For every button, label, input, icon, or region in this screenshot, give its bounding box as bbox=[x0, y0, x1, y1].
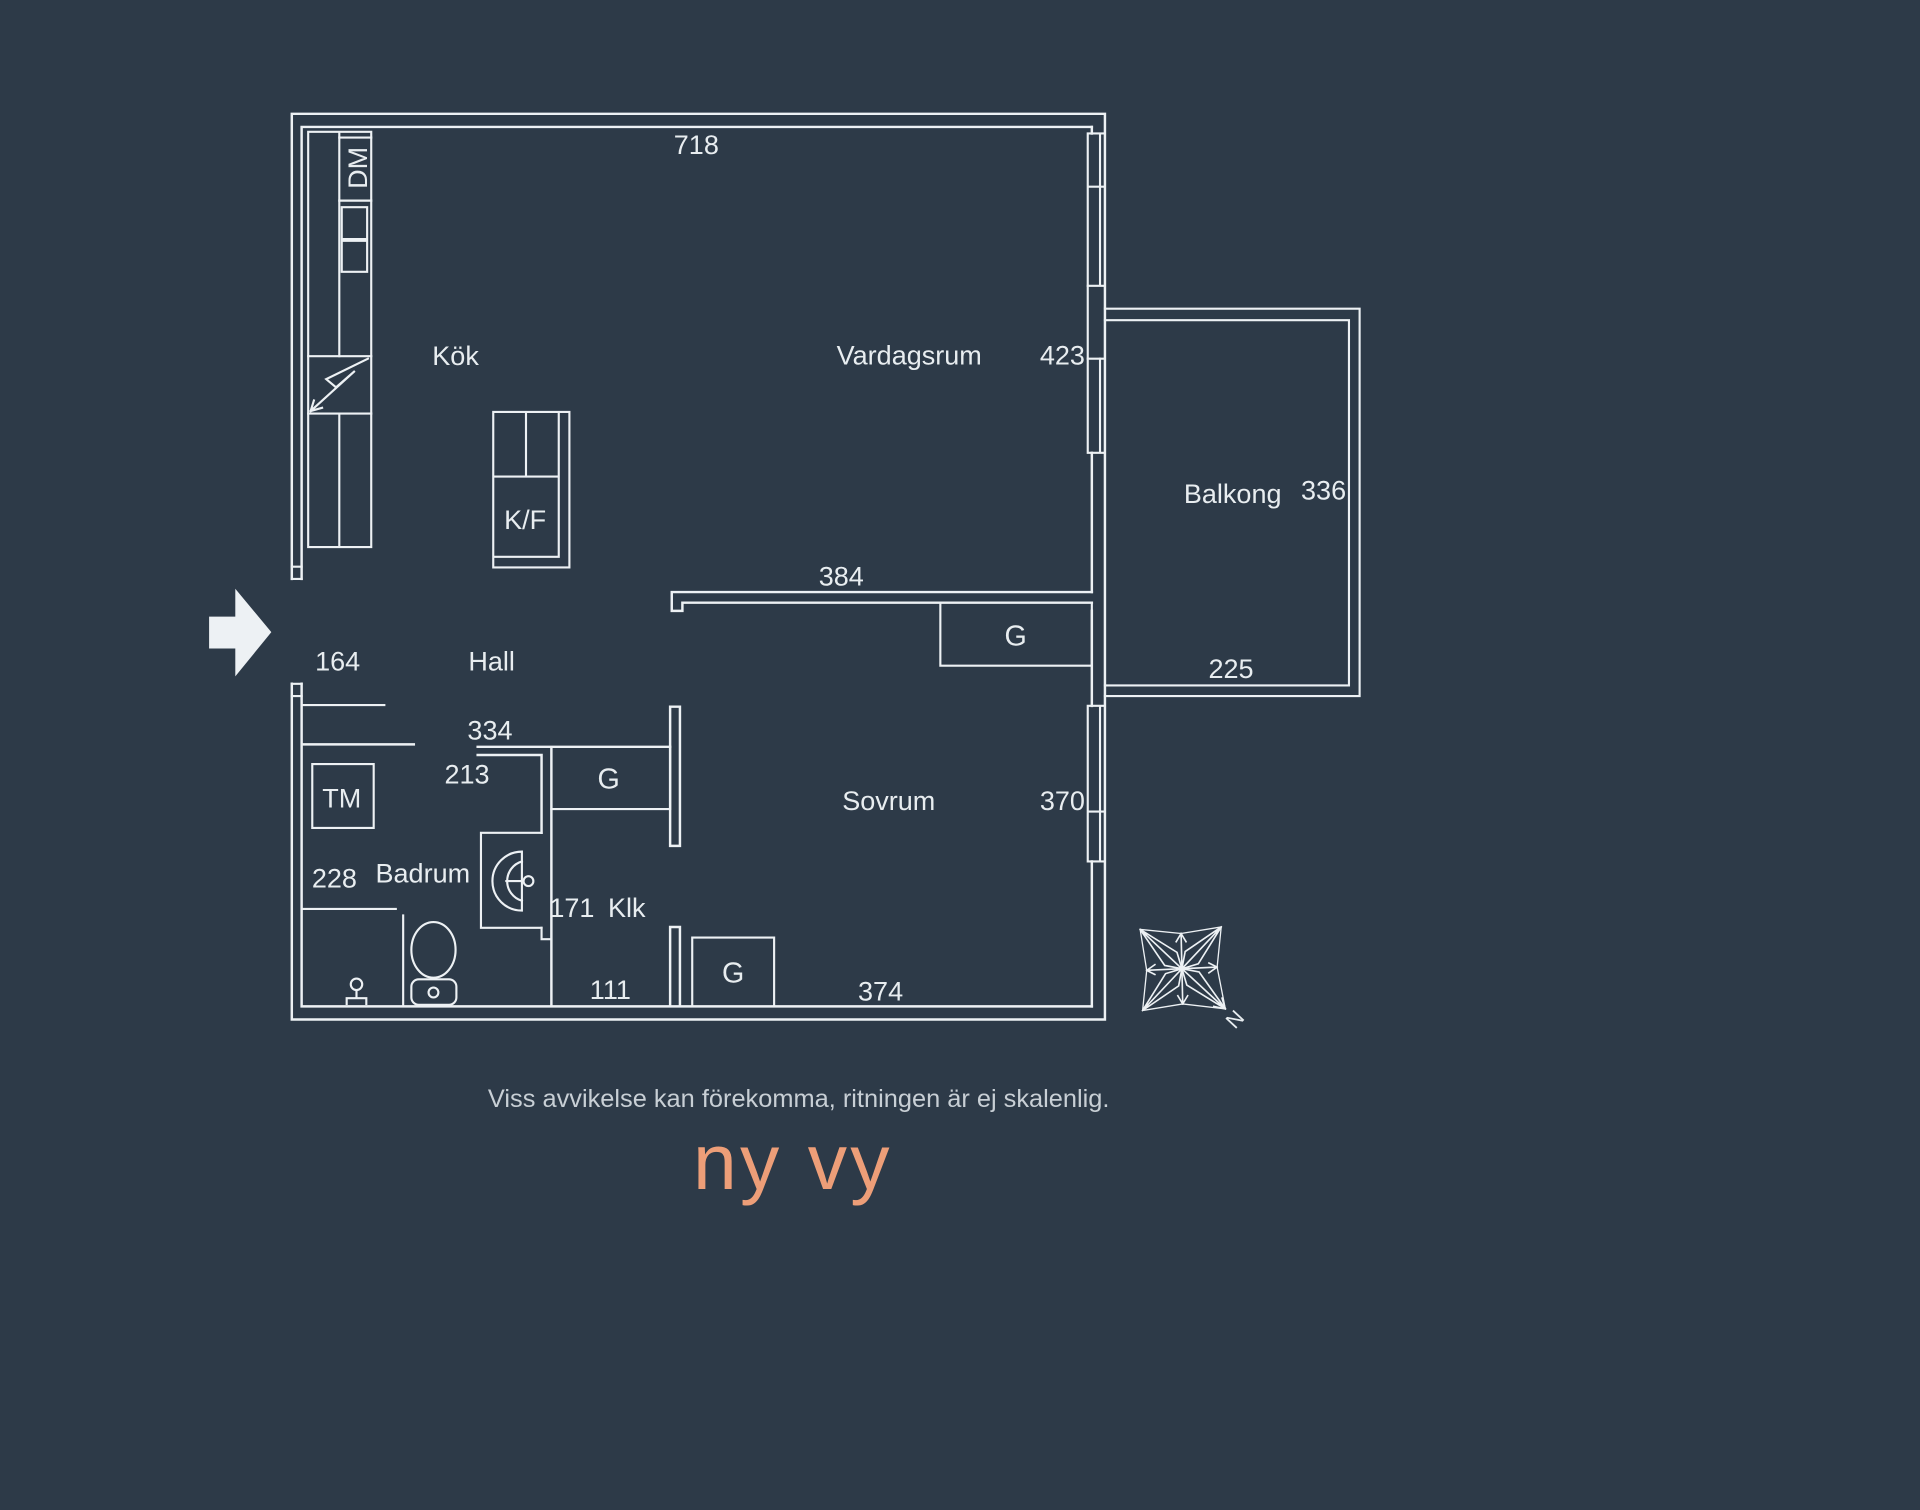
room-label-hall: Hall bbox=[468, 647, 515, 677]
floor-plan: N Kök Vardagsrum Hall Badrum Sovrum Klk … bbox=[0, 0, 1920, 1510]
floor-plan-svg: N Kök Vardagsrum Hall Badrum Sovrum Klk … bbox=[0, 0, 1920, 1510]
room-label-living: Vardagsrum bbox=[837, 340, 982, 370]
dim-bedroom-right: 370 bbox=[1040, 786, 1085, 816]
dim-closet-width: 111 bbox=[590, 975, 631, 1005]
partition-walls bbox=[303, 592, 1092, 1006]
room-label-closet: Klk bbox=[608, 893, 646, 923]
label-washing-machine: TM bbox=[322, 783, 361, 813]
dim-living-right: 423 bbox=[1040, 340, 1085, 370]
dim-balcony-width: 225 bbox=[1209, 654, 1254, 684]
windows-right-wall bbox=[1088, 133, 1105, 861]
disclaimer-text: Viss avvikelse kan förekomma, ritningen … bbox=[488, 1085, 1110, 1113]
toilet-icon bbox=[411, 922, 456, 1005]
compass-rose-icon: N bbox=[1140, 927, 1249, 1033]
dim-balcony-side: 336 bbox=[1301, 476, 1346, 506]
fridge-freezer-unit bbox=[493, 412, 569, 568]
label-dishwasher: DM bbox=[343, 147, 373, 189]
kitchen-counter bbox=[308, 132, 371, 547]
dim-bathroom-width: 213 bbox=[444, 760, 489, 790]
room-label-bedroom: Sovrum bbox=[842, 786, 935, 816]
room-label-balcony: Balkong bbox=[1184, 479, 1282, 509]
label-wardrobe-bedroom: G bbox=[722, 958, 744, 990]
floor-drain-icon bbox=[347, 979, 367, 1004]
label-wardrobe-hall: G bbox=[598, 764, 620, 796]
label-wardrobe-wall: G bbox=[1005, 620, 1027, 652]
room-label-bathroom: Badrum bbox=[376, 859, 471, 889]
dim-bathroom-height: 228 bbox=[312, 864, 357, 894]
dim-closet-depth: 171 bbox=[549, 893, 594, 923]
entrance-arrow-icon bbox=[209, 589, 271, 677]
dim-top-wall: 718 bbox=[674, 130, 719, 160]
logo-nyvy: ny vy bbox=[693, 1118, 893, 1206]
dim-hall-width: 334 bbox=[467, 715, 512, 745]
sink-icon bbox=[492, 852, 533, 911]
room-label-kitchen: Kök bbox=[432, 341, 479, 371]
stove-icon bbox=[311, 359, 368, 411]
dim-entrance-niche: 164 bbox=[315, 647, 360, 677]
label-fridge-freezer: K/F bbox=[504, 505, 546, 535]
dim-partition-wall: 384 bbox=[819, 561, 864, 591]
wardrobes bbox=[551, 603, 1091, 1006]
dim-bedroom-bottom: 374 bbox=[858, 977, 903, 1007]
